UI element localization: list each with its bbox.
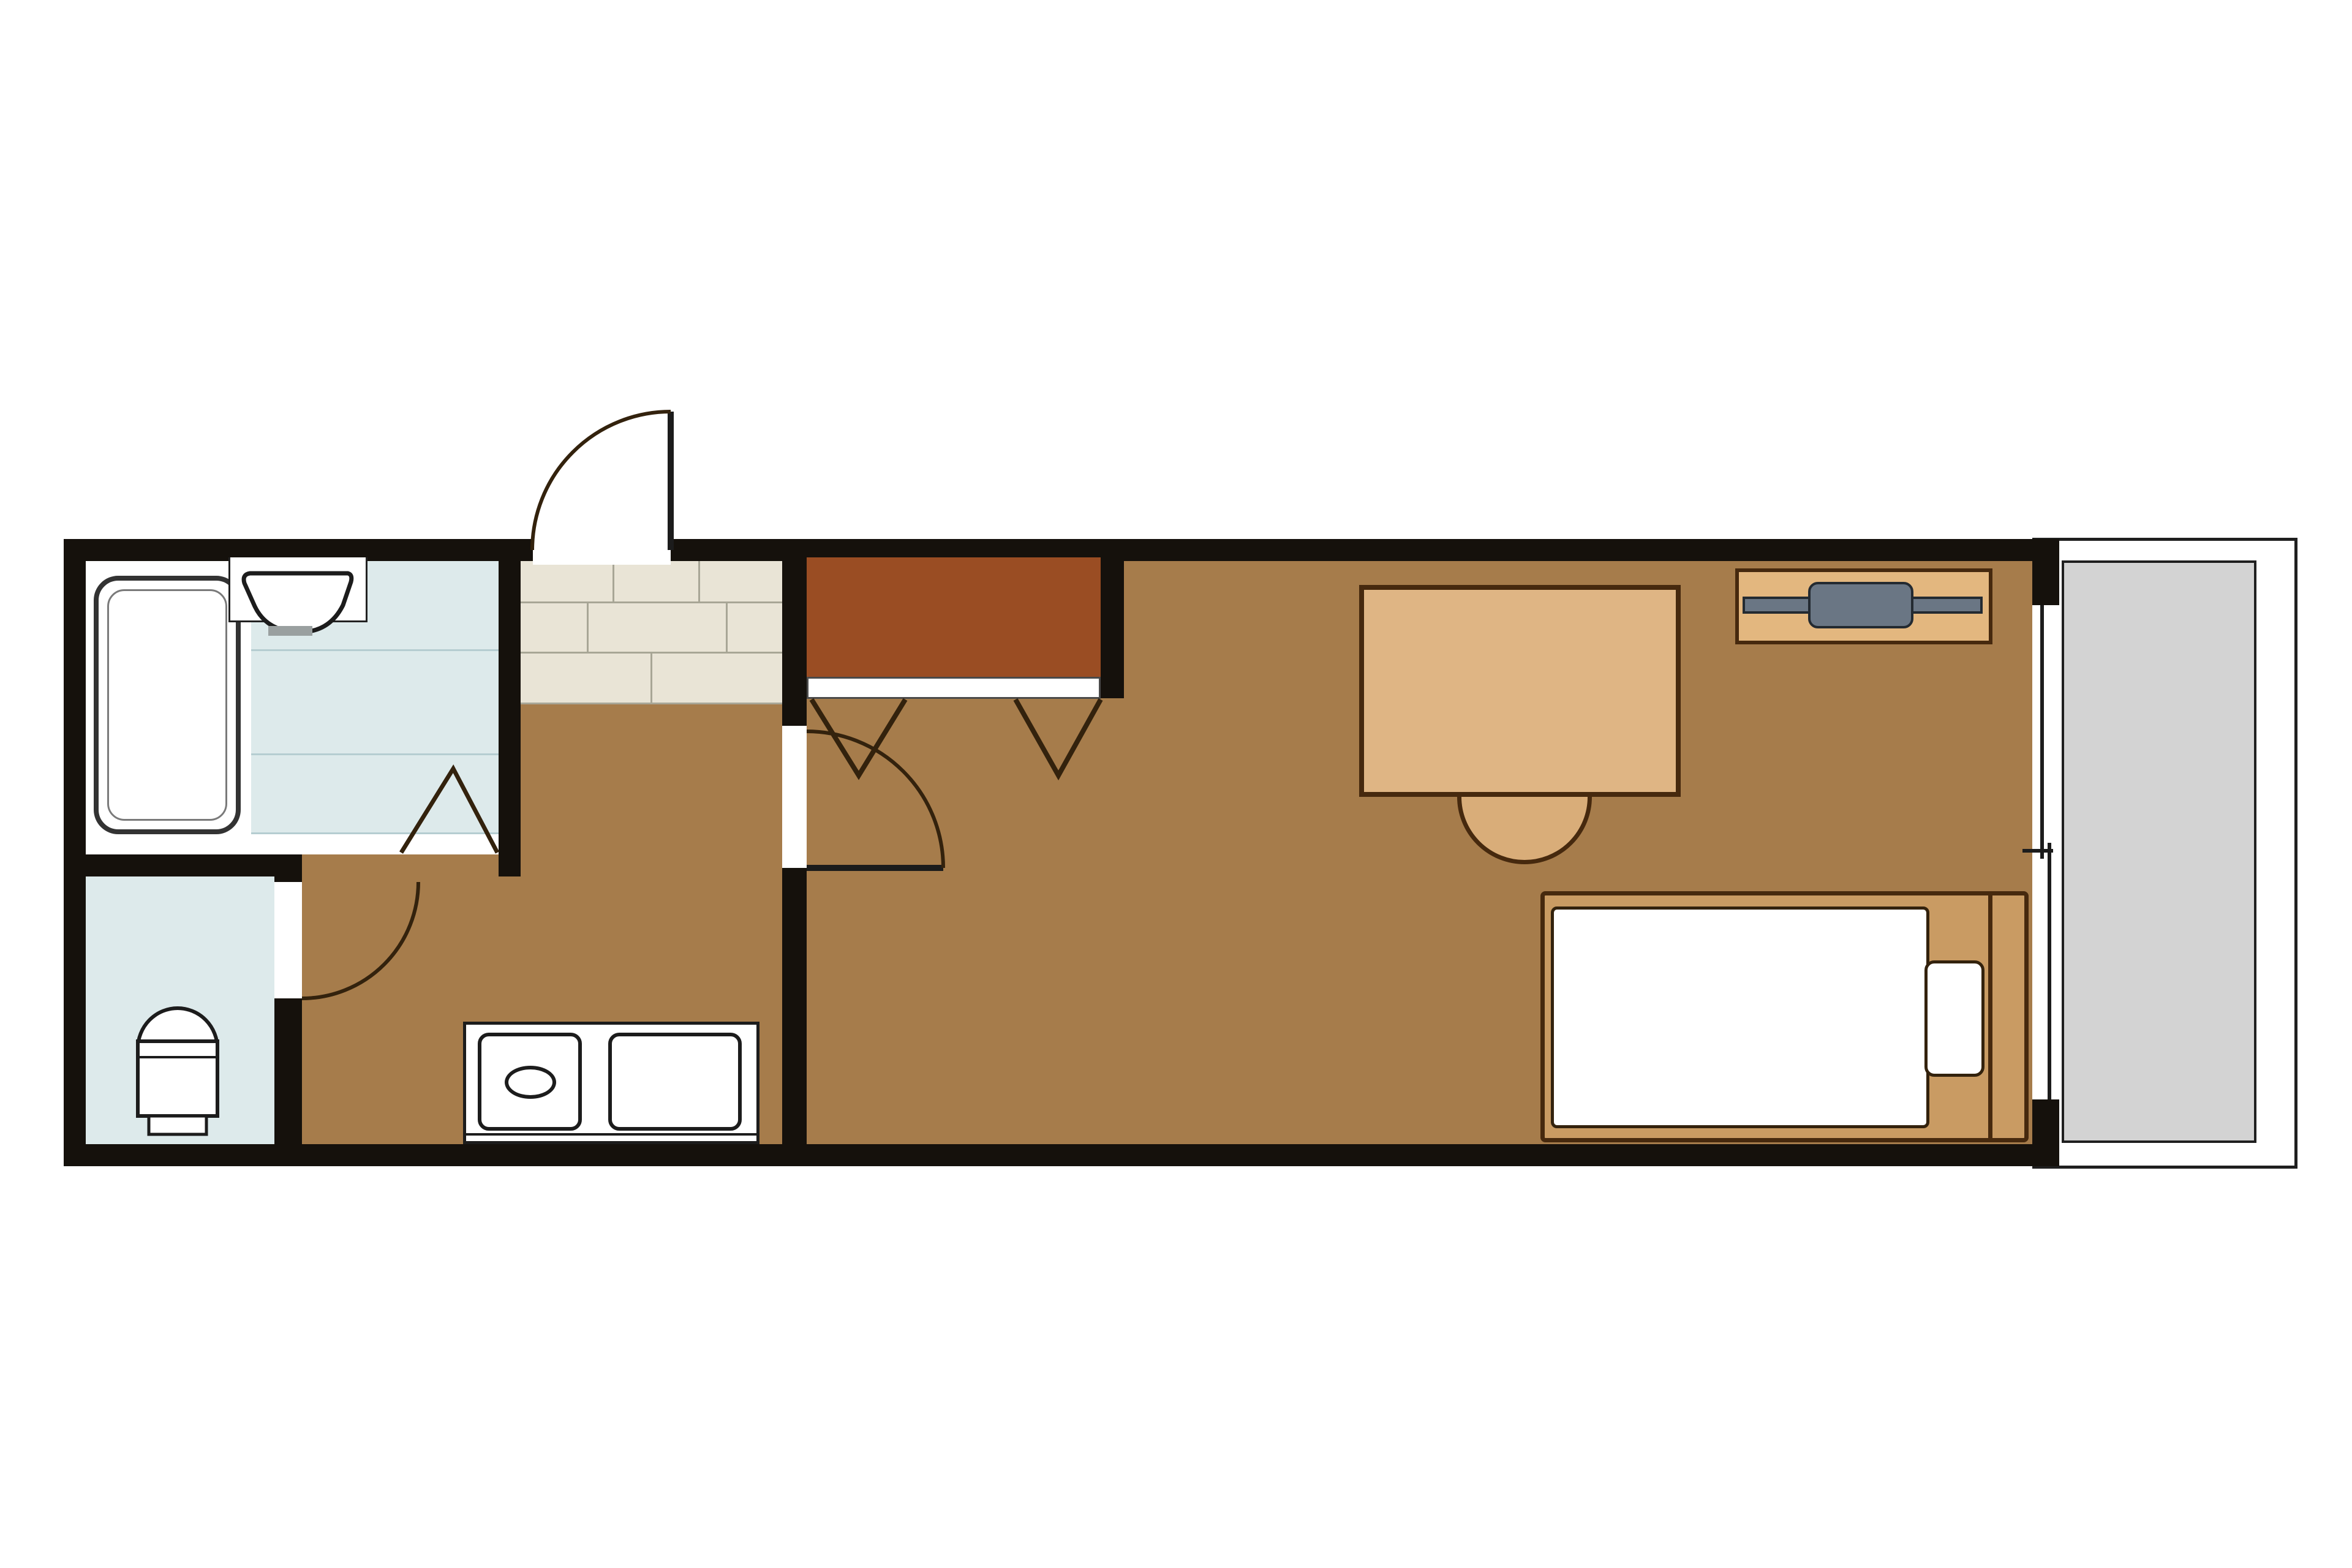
washbasin-drain-ledge (268, 626, 312, 636)
toilet-base-icon (149, 1116, 206, 1134)
closet-folding-door-icon (1016, 699, 1101, 775)
floor-plan-canvas (0, 0, 2352, 1568)
washbasin-icon (244, 573, 352, 632)
entrance-door-swing-arc (532, 412, 671, 550)
plan-symbols-layer (0, 0, 2352, 1568)
bath-folding-door-icon (401, 769, 497, 853)
closet-folding-door-icon (812, 699, 905, 775)
toilet-tank-icon (138, 1041, 217, 1116)
toilet-door-swing-arc (302, 882, 418, 998)
